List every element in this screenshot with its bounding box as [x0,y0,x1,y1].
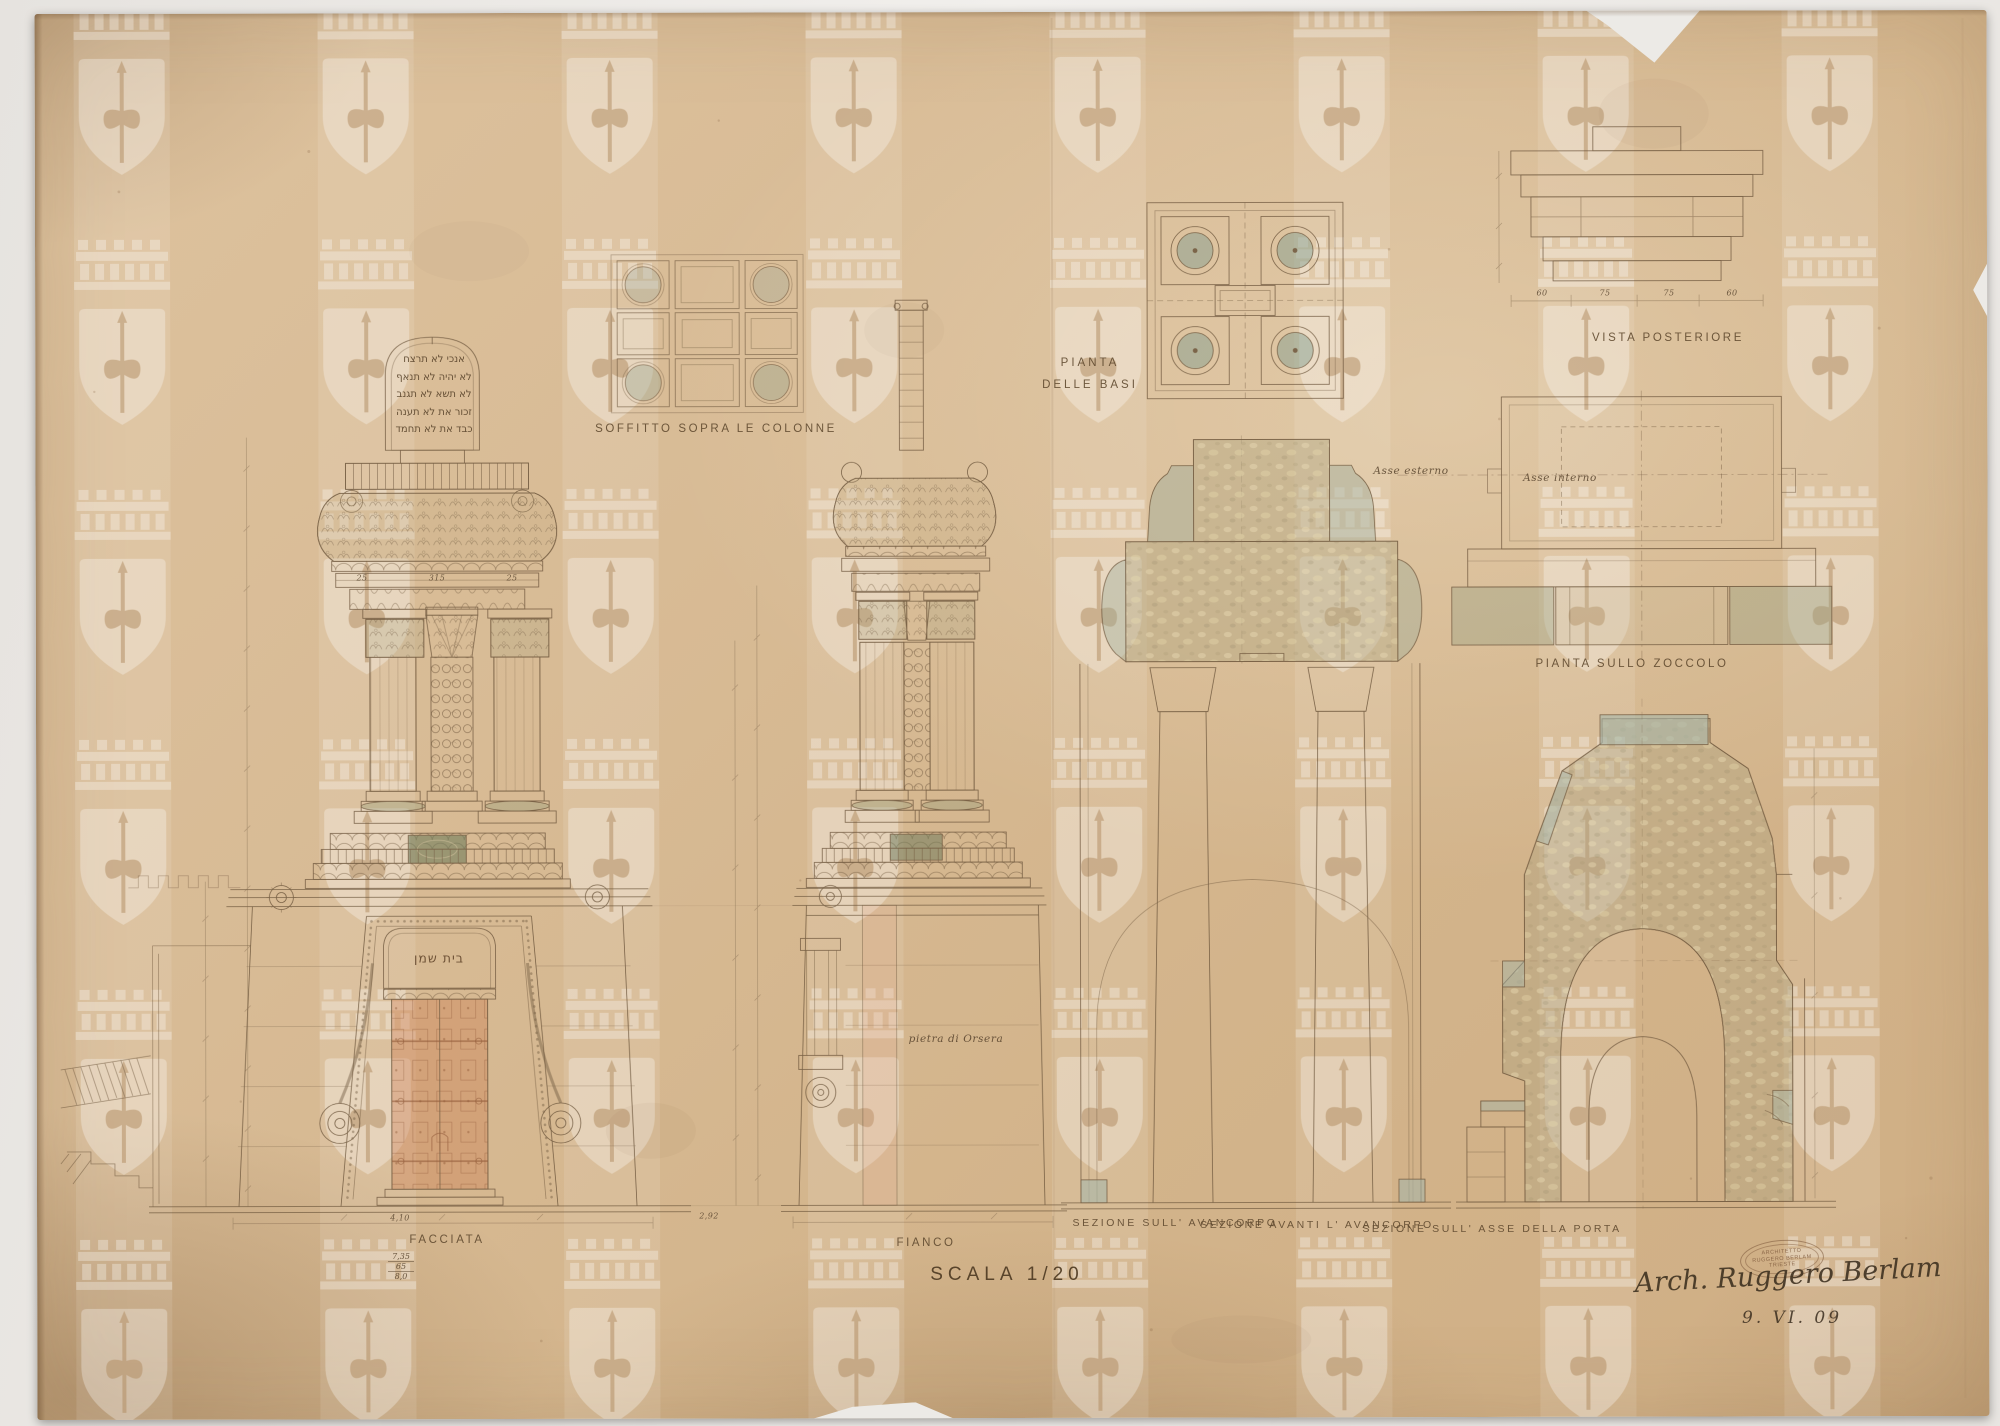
photograph-of-drawing: אנכי לא תרצח לא יהיה לא תנאף לא תשא לא ת… [0,0,2000,1426]
dim-abacus: 25 [357,574,368,583]
tablet-line: לא יהיה לא תנאף [377,369,491,387]
label-fianco: FIANCO [896,1237,955,1249]
tablet-line: לא תשא לא תגנב [377,386,491,404]
dim-abacus: 315 [429,574,445,583]
tablet-line: כבד את לא תחמד [377,421,491,439]
label-scala: SCALA 1/20 [930,1264,1084,1286]
label-facciata: FACCIATA [409,1234,484,1246]
pianta-basi-drawing [1147,202,1343,398]
dim-posteriore: 75 [1664,289,1675,298]
dim-abacus: 25 [507,574,518,583]
sezione-porta-drawing [1455,698,1836,1209]
tablet-line: אנכי לא תרצח [377,351,491,369]
door-plaque-hebrew: בית שמן [414,951,464,966]
dim-facciata-width: 4,10 [390,1214,409,1223]
dim-posteriore: 60 [1537,289,1548,298]
dim-posteriore: 75 [1600,289,1611,298]
soffitto-plan-drawing [611,254,803,412]
note-pietra-orsera: pietra di Orsera [909,1033,1004,1045]
note-asse-interno: Asse interno [1523,472,1597,484]
sketch-fragment [61,1056,153,1188]
fianco-drawing [651,300,1067,1229]
drawing-date: 9. VI. 09 [1742,1308,1842,1328]
tablet-line: זכור את לא תענה [377,404,491,422]
label-sezione-porta: SEZIONE SULL' ASSE DELLA PORTA [1362,1223,1621,1235]
label-pianta-basi-2: DELLE BASI [1042,379,1138,391]
note-asse-esterno: Asse esterno [1373,465,1448,477]
vista-posteriore-drawing [1496,126,1763,307]
sezione-avancorpo-drawing [1059,435,1451,1209]
label-soffitto: SOFFITTO SOPRA LE COLONNE [595,423,837,435]
tablets-hebrew-inscription: אנכי לא תרצח לא יהיה לא תנאף לא תשא לא ת… [377,351,491,439]
dim-fianco-width: 2,92 [699,1212,718,1221]
drawing-sheet [35,10,1990,1420]
dim-posteriore: 60 [1727,289,1738,298]
dim-stack: 7,35 65 8,0 [388,1252,414,1281]
architectural-drawing [35,10,1990,1420]
label-vista-posteriore: VISTA POSTERIORE [1592,332,1744,344]
facciata-drawing [127,337,739,1230]
label-pianta-basi-1: PIANTA [1061,357,1120,369]
label-pianta-zoccolo: PIANTA SULLO ZOCCOLO [1535,658,1728,670]
pianta-zoccolo-drawing [1397,390,1832,659]
